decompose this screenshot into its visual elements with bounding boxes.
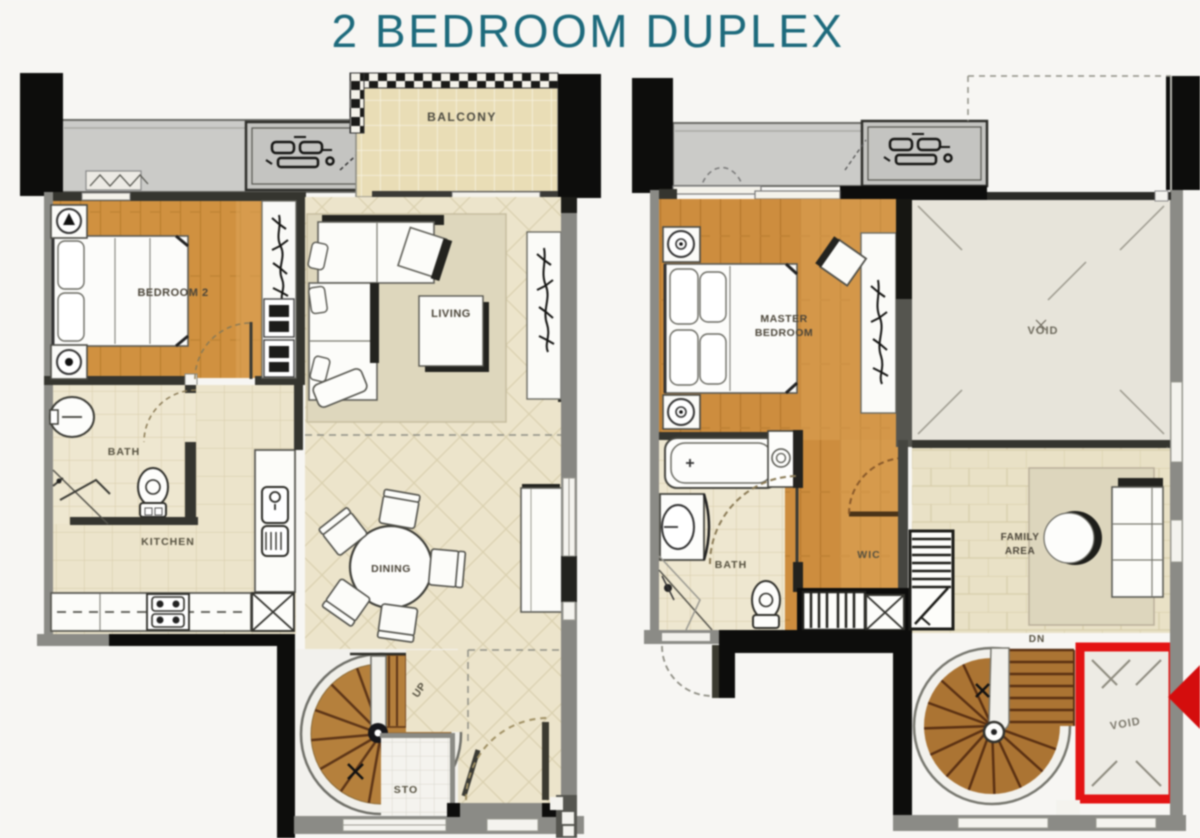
svg-text:DINING: DINING <box>371 563 411 575</box>
svg-text:KITCHEN: KITCHEN <box>141 536 195 548</box>
svg-text:BALCONY: BALCONY <box>427 110 497 124</box>
svg-text:AREA: AREA <box>1005 546 1035 557</box>
svg-text:WIC: WIC <box>857 549 880 561</box>
svg-text:STO: STO <box>394 784 418 796</box>
svg-text:2 BEDROOM DUPLEX: 2 BEDROOM DUPLEX <box>332 5 845 57</box>
svg-text:FAMILY: FAMILY <box>1001 532 1040 543</box>
svg-text:BATH: BATH <box>715 559 747 571</box>
svg-text:LIVING: LIVING <box>431 308 471 320</box>
svg-text:BEDROOM: BEDROOM <box>755 327 813 339</box>
svg-text:DN: DN <box>1029 634 1045 645</box>
svg-text:MASTER: MASTER <box>760 313 807 325</box>
svg-text:BATH: BATH <box>108 446 140 458</box>
svg-text:BEDROOM 2: BEDROOM 2 <box>137 287 208 299</box>
